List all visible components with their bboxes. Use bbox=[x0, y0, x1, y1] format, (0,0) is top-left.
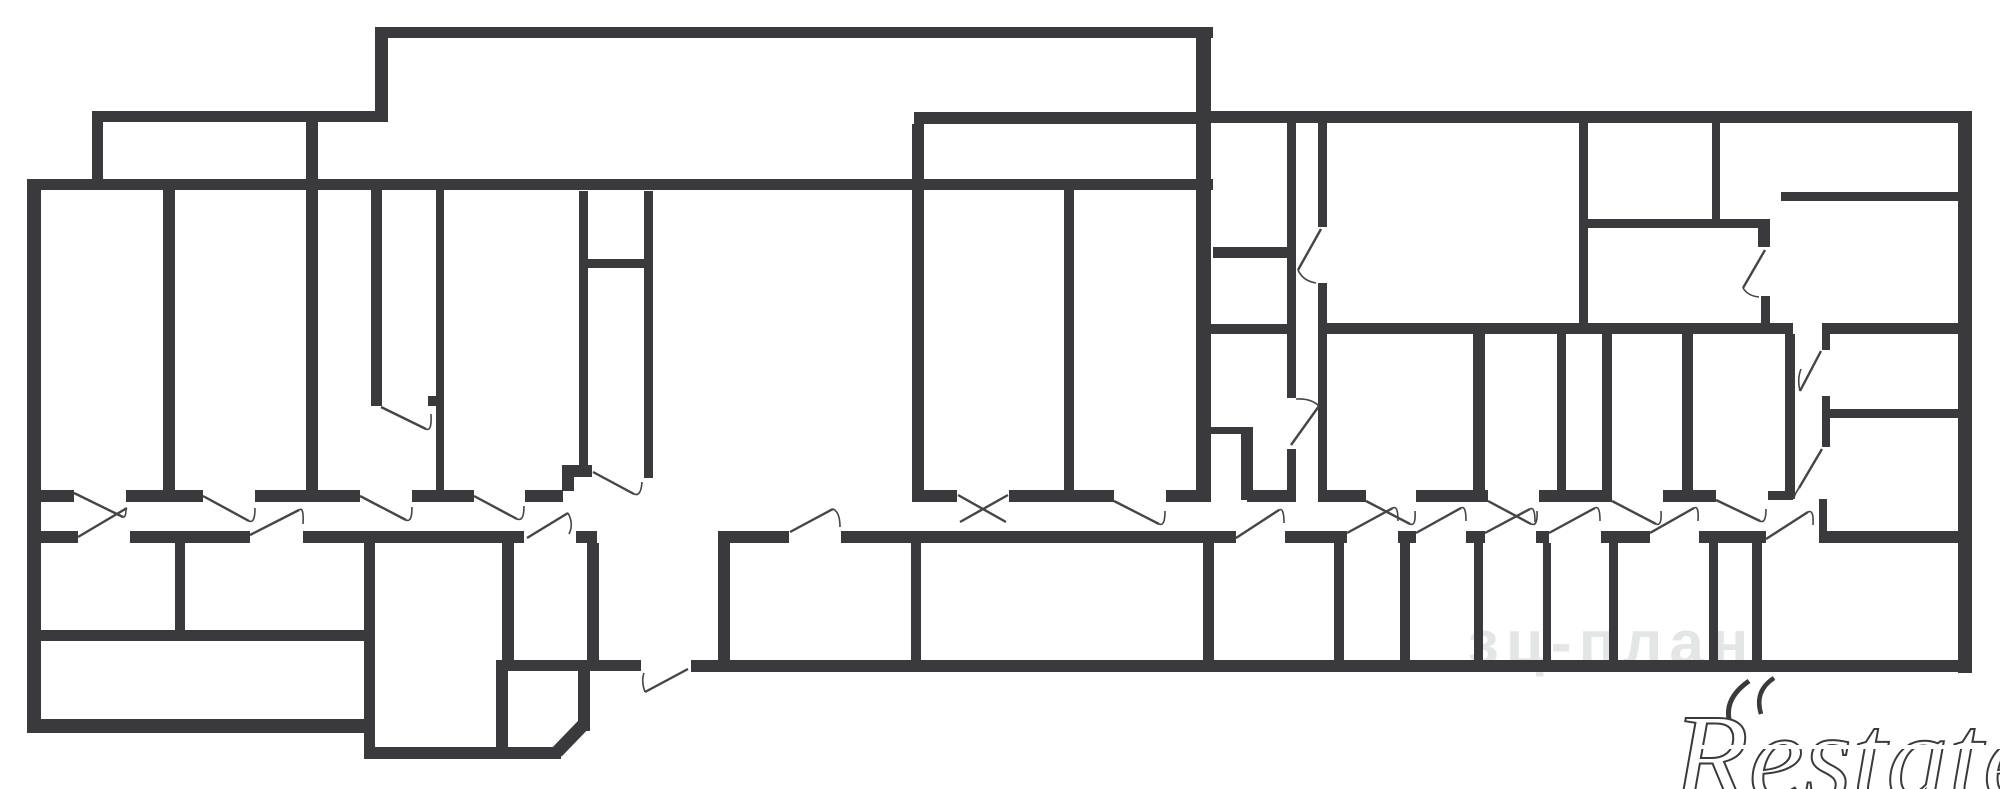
svg-text:Restate: Restate bbox=[1672, 689, 2000, 789]
